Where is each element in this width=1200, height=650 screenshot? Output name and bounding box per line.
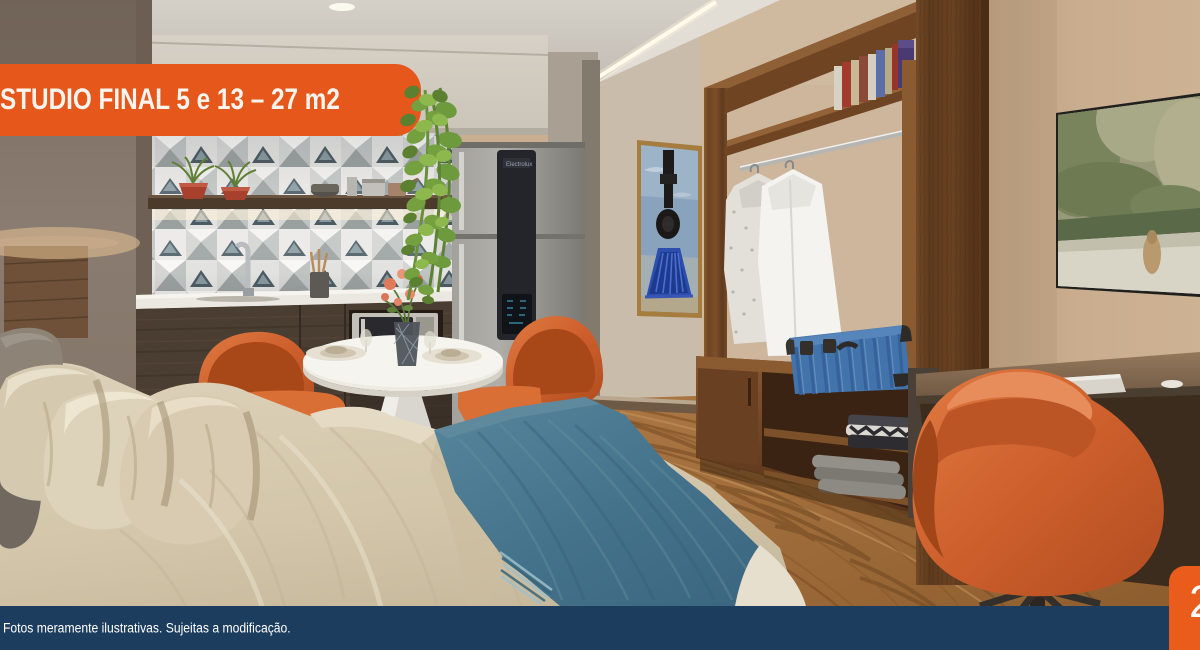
svg-text:Electrolux: Electrolux [506, 162, 532, 168]
